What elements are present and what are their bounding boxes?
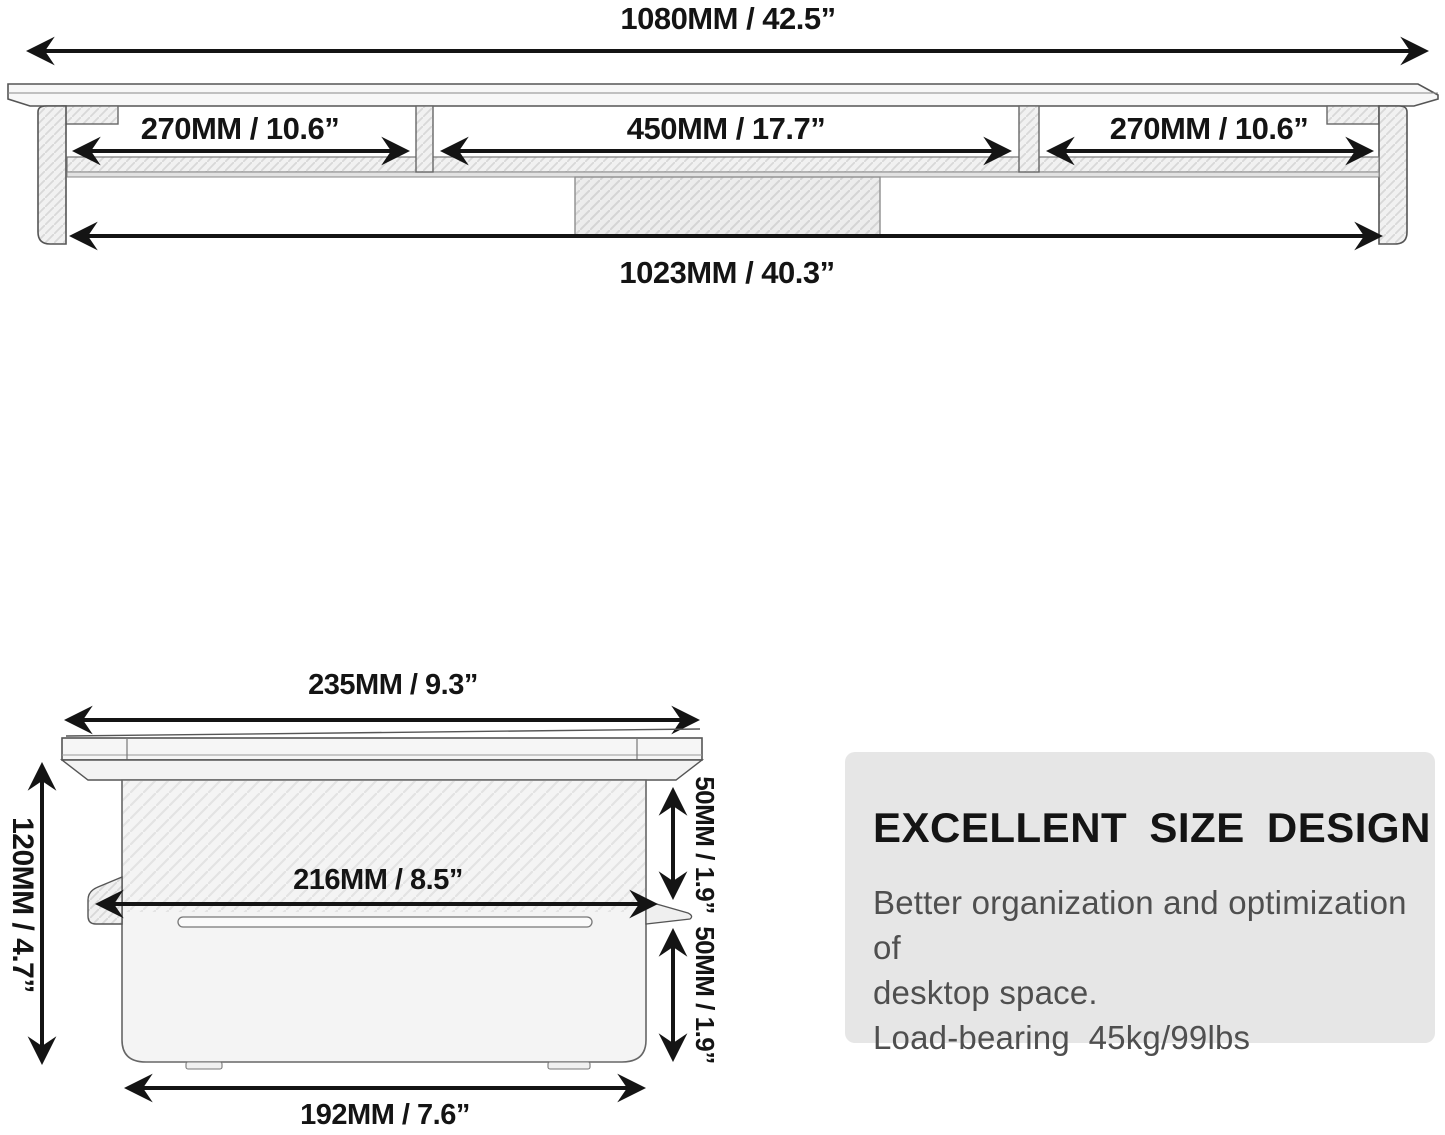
side-plate-band [62, 738, 702, 760]
upper-clearance-label: 50MM / 1.9” [690, 776, 720, 914]
middle-section-label: 450MM / 17.7” [627, 111, 826, 146]
top-view-diagram: 1080MM / 42.5” 270MM / 10.6” 450MM / 17. [8, 1, 1438, 290]
side-plate-top-edge [66, 729, 700, 736]
side-height-label: 120MM / 4.7” [6, 817, 39, 993]
lower-clearance-label: 50MM / 1.9” [690, 926, 720, 1064]
lower-shelf [67, 157, 1379, 172]
side-inner-width-label: 216MM / 8.5” [293, 864, 463, 896]
info-box-line: desktop space. [873, 970, 1435, 1015]
left-leg-bracket [62, 106, 118, 124]
divider-right [1019, 106, 1039, 172]
left-section-label: 270MM / 10.6” [141, 111, 340, 146]
right-section-label: 270MM / 10.6” [1110, 111, 1309, 146]
side-view-diagram: 235MM / 9.3” 120MM / 4.7” [6, 669, 720, 1131]
side-foot-right [548, 1062, 590, 1069]
shelf-top-plate [8, 84, 1438, 106]
side-foot-left [186, 1062, 222, 1069]
info-box-line: Better organization and optimization of [873, 880, 1435, 970]
product-dimension-sheet: 1080MM / 42.5” 270MM / 10.6” 450MM / 17. [0, 0, 1445, 1135]
side-top-width-label: 235MM / 9.3” [308, 669, 478, 701]
info-box-line: Load-bearing 45kg/99lbs [873, 1015, 1435, 1060]
divider-left [416, 106, 433, 172]
side-plate-flare [62, 760, 702, 780]
cable-slot [178, 917, 592, 927]
lower-shelf-rail [67, 172, 1379, 177]
inner-width-label: 1023MM / 40.3” [619, 255, 834, 290]
info-box-heading: EXCELLENT SIZE DESIGN [873, 804, 1435, 852]
info-box: EXCELLENT SIZE DESIGN Better organizatio… [845, 752, 1435, 1043]
total-width-label: 1080MM / 42.5” [620, 1, 835, 36]
right-leg [1379, 106, 1407, 244]
left-leg [38, 106, 66, 244]
side-base-width-label: 192MM / 7.6” [300, 1099, 470, 1131]
drawer-panel [575, 177, 880, 236]
right-leg-bracket [1327, 106, 1379, 124]
side-hook [88, 877, 122, 924]
